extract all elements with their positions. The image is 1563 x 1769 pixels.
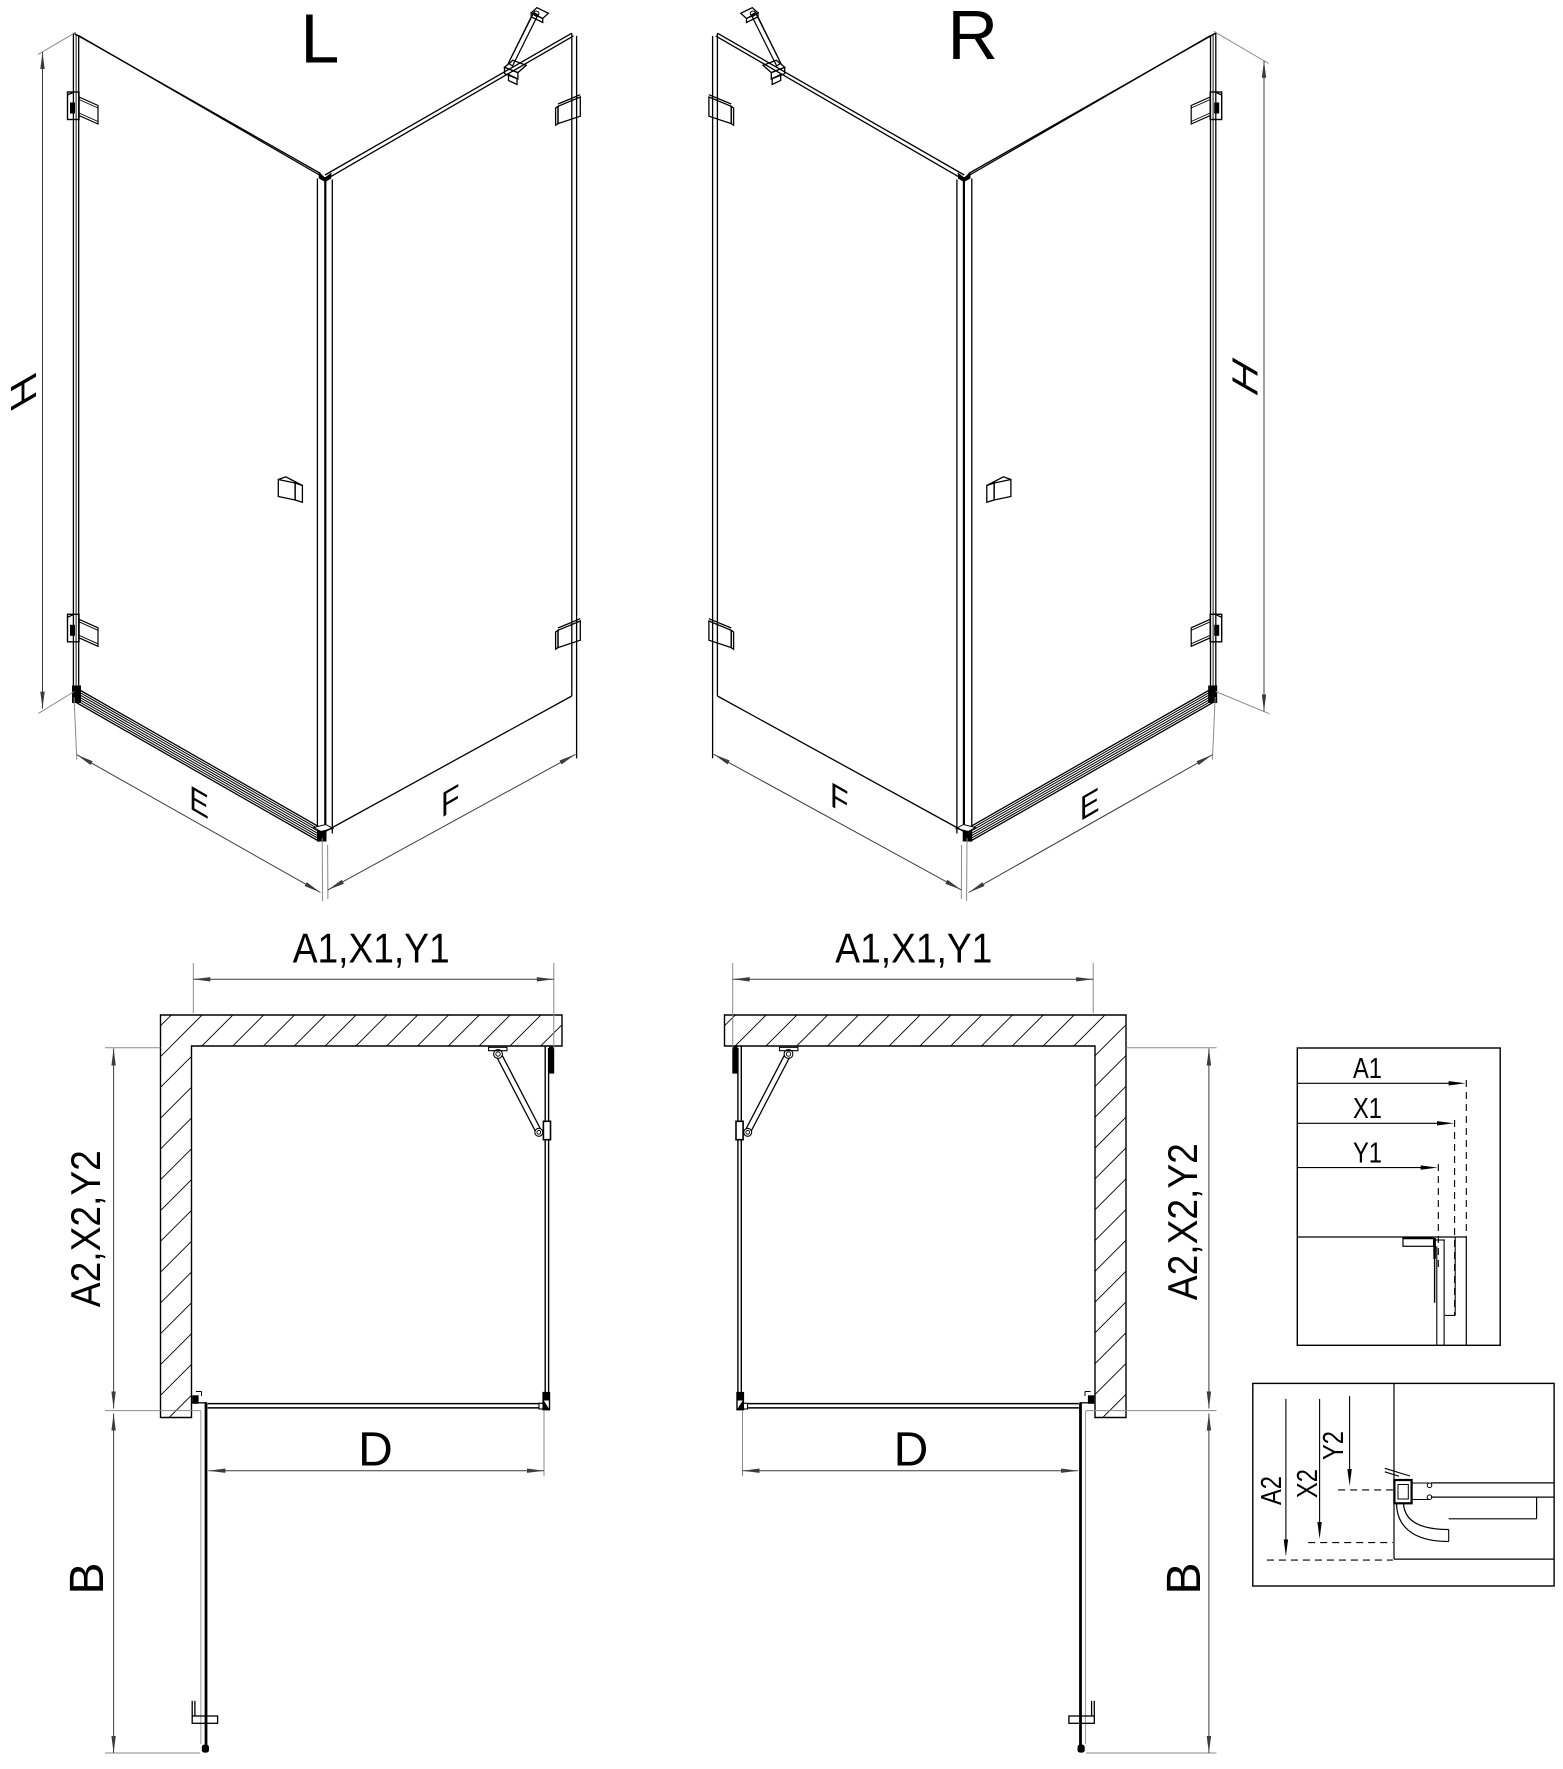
- svg-text:D: D: [894, 1423, 929, 1476]
- svg-text:X2: X2: [1292, 1469, 1324, 1498]
- svg-text:B: B: [1158, 1562, 1211, 1594]
- svg-text:A1,X1,Y1: A1,X1,Y1: [835, 925, 992, 972]
- svg-text:D: D: [358, 1423, 393, 1476]
- svg-text:R: R: [948, 0, 999, 74]
- svg-text:A2,X2,Y2: A2,X2,Y2: [62, 1150, 109, 1307]
- svg-text:Y2: Y2: [1318, 1431, 1350, 1460]
- svg-text:B: B: [61, 1562, 114, 1594]
- svg-text:A2: A2: [1256, 1476, 1288, 1505]
- svg-text:Y1: Y1: [1353, 1137, 1382, 1169]
- svg-text:A2,X2,Y2: A2,X2,Y2: [1159, 1143, 1206, 1300]
- svg-text:X1: X1: [1353, 1093, 1382, 1125]
- svg-text:L: L: [300, 0, 339, 78]
- svg-text:A1,X1,Y1: A1,X1,Y1: [293, 925, 450, 972]
- svg-text:A1: A1: [1353, 1053, 1382, 1085]
